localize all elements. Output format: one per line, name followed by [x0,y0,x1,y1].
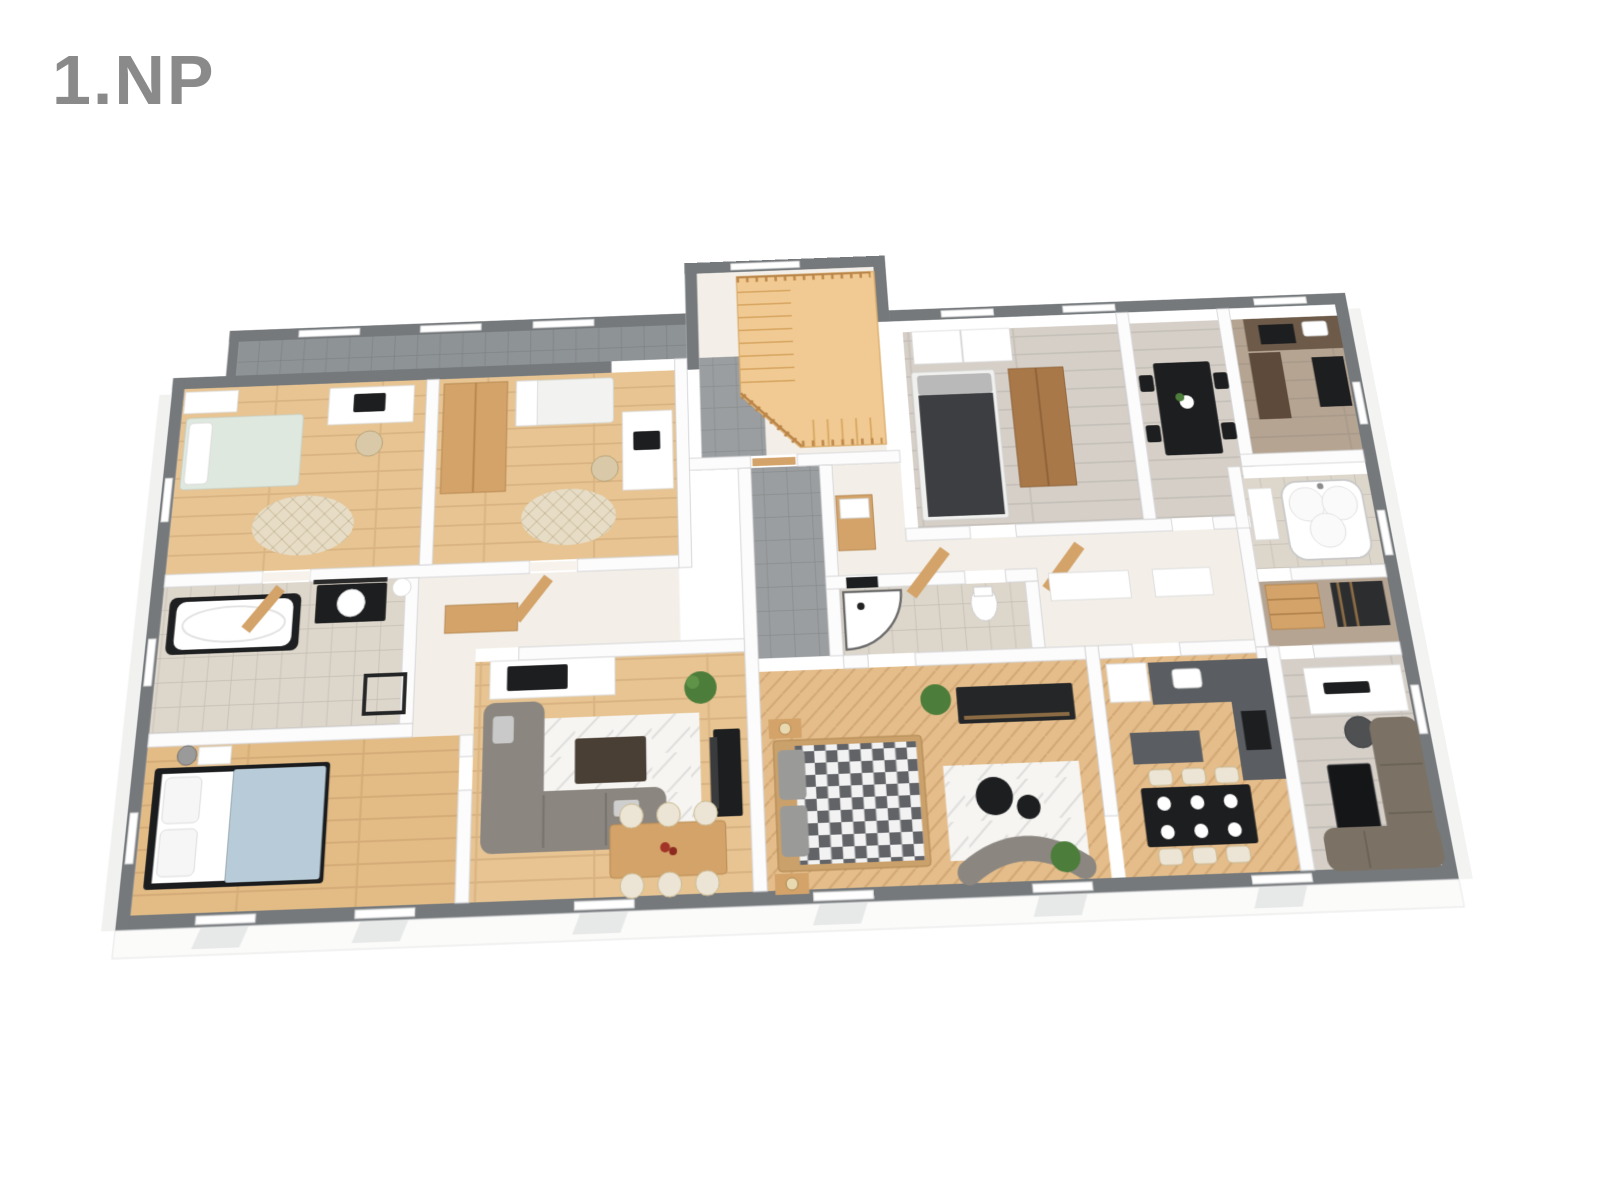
cooktop [1258,324,1296,345]
desk-chair [591,455,618,482]
island [1130,730,1204,764]
sink [1171,668,1202,688]
floorplan-page: 1.NP [0,0,1600,1200]
fridge [1106,663,1151,703]
keyboard [1323,681,1371,694]
dining-table [1141,784,1259,847]
floorplan-svg [49,238,1482,983]
corner-sofa [1322,824,1447,872]
laptop [633,431,660,451]
wall-cabinet [846,576,878,588]
floor-label: 1.NP [52,40,216,120]
blanket [224,766,326,883]
counter-top [1148,658,1274,705]
cooktop [507,664,568,691]
floorplan-3d-view [49,238,1482,983]
door-opening [262,571,311,582]
desk [622,410,673,490]
wardrobe-shelves [1265,583,1325,629]
stair-door-threshold [752,457,796,466]
laptop [353,393,386,412]
sideboard [444,603,517,633]
duvet [918,393,1005,517]
pillow [917,373,993,396]
hall-sideboard [1048,570,1131,600]
hall-sideboard [1152,567,1214,597]
door-opening [530,561,578,572]
sink [1301,321,1328,336]
coffee-table [575,736,647,784]
